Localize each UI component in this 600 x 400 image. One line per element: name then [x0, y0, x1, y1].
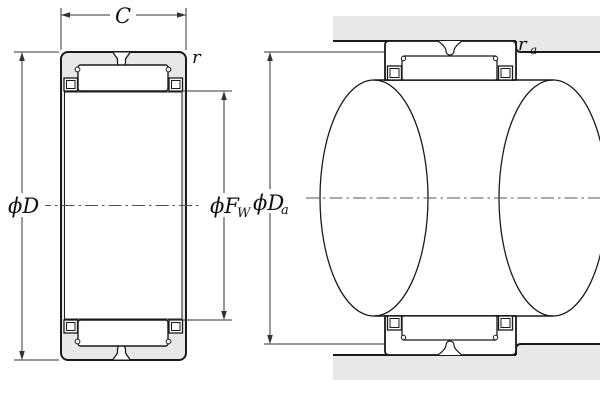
outer-diameter-label: ϕD: [8, 194, 39, 218]
needle-roller-top: [78, 65, 168, 91]
fillet-radius-label: r: [518, 34, 528, 55]
needle-roller-bottom: [78, 320, 168, 346]
raceway-diameter-label: ϕF: [210, 194, 240, 218]
left-section-view: [38, 52, 202, 360]
shoulder-diameter-label: ϕD: [253, 191, 284, 215]
mounted-bearing-top: [385, 41, 516, 80]
needle-roller-top-right-view: [402, 56, 497, 80]
fillet-radius-subscript: a: [530, 43, 537, 57]
mounted-bearing-bottom: [385, 316, 516, 355]
right-mounted-view: [306, 16, 600, 380]
chamfer-radius-label: r: [192, 47, 202, 68]
diagram-svg: C r ϕD ϕF W ϕD a r a: [0, 0, 600, 400]
width-dimension-label: C: [115, 4, 131, 28]
raceway-diameter-subscript: W: [237, 206, 252, 221]
shoulder-diameter-subscript: a: [281, 203, 289, 218]
bearing-dimension-diagram: C r ϕD ϕF W ϕD a r a: [0, 0, 600, 400]
needle-roller-bottom-right-view: [402, 316, 497, 340]
